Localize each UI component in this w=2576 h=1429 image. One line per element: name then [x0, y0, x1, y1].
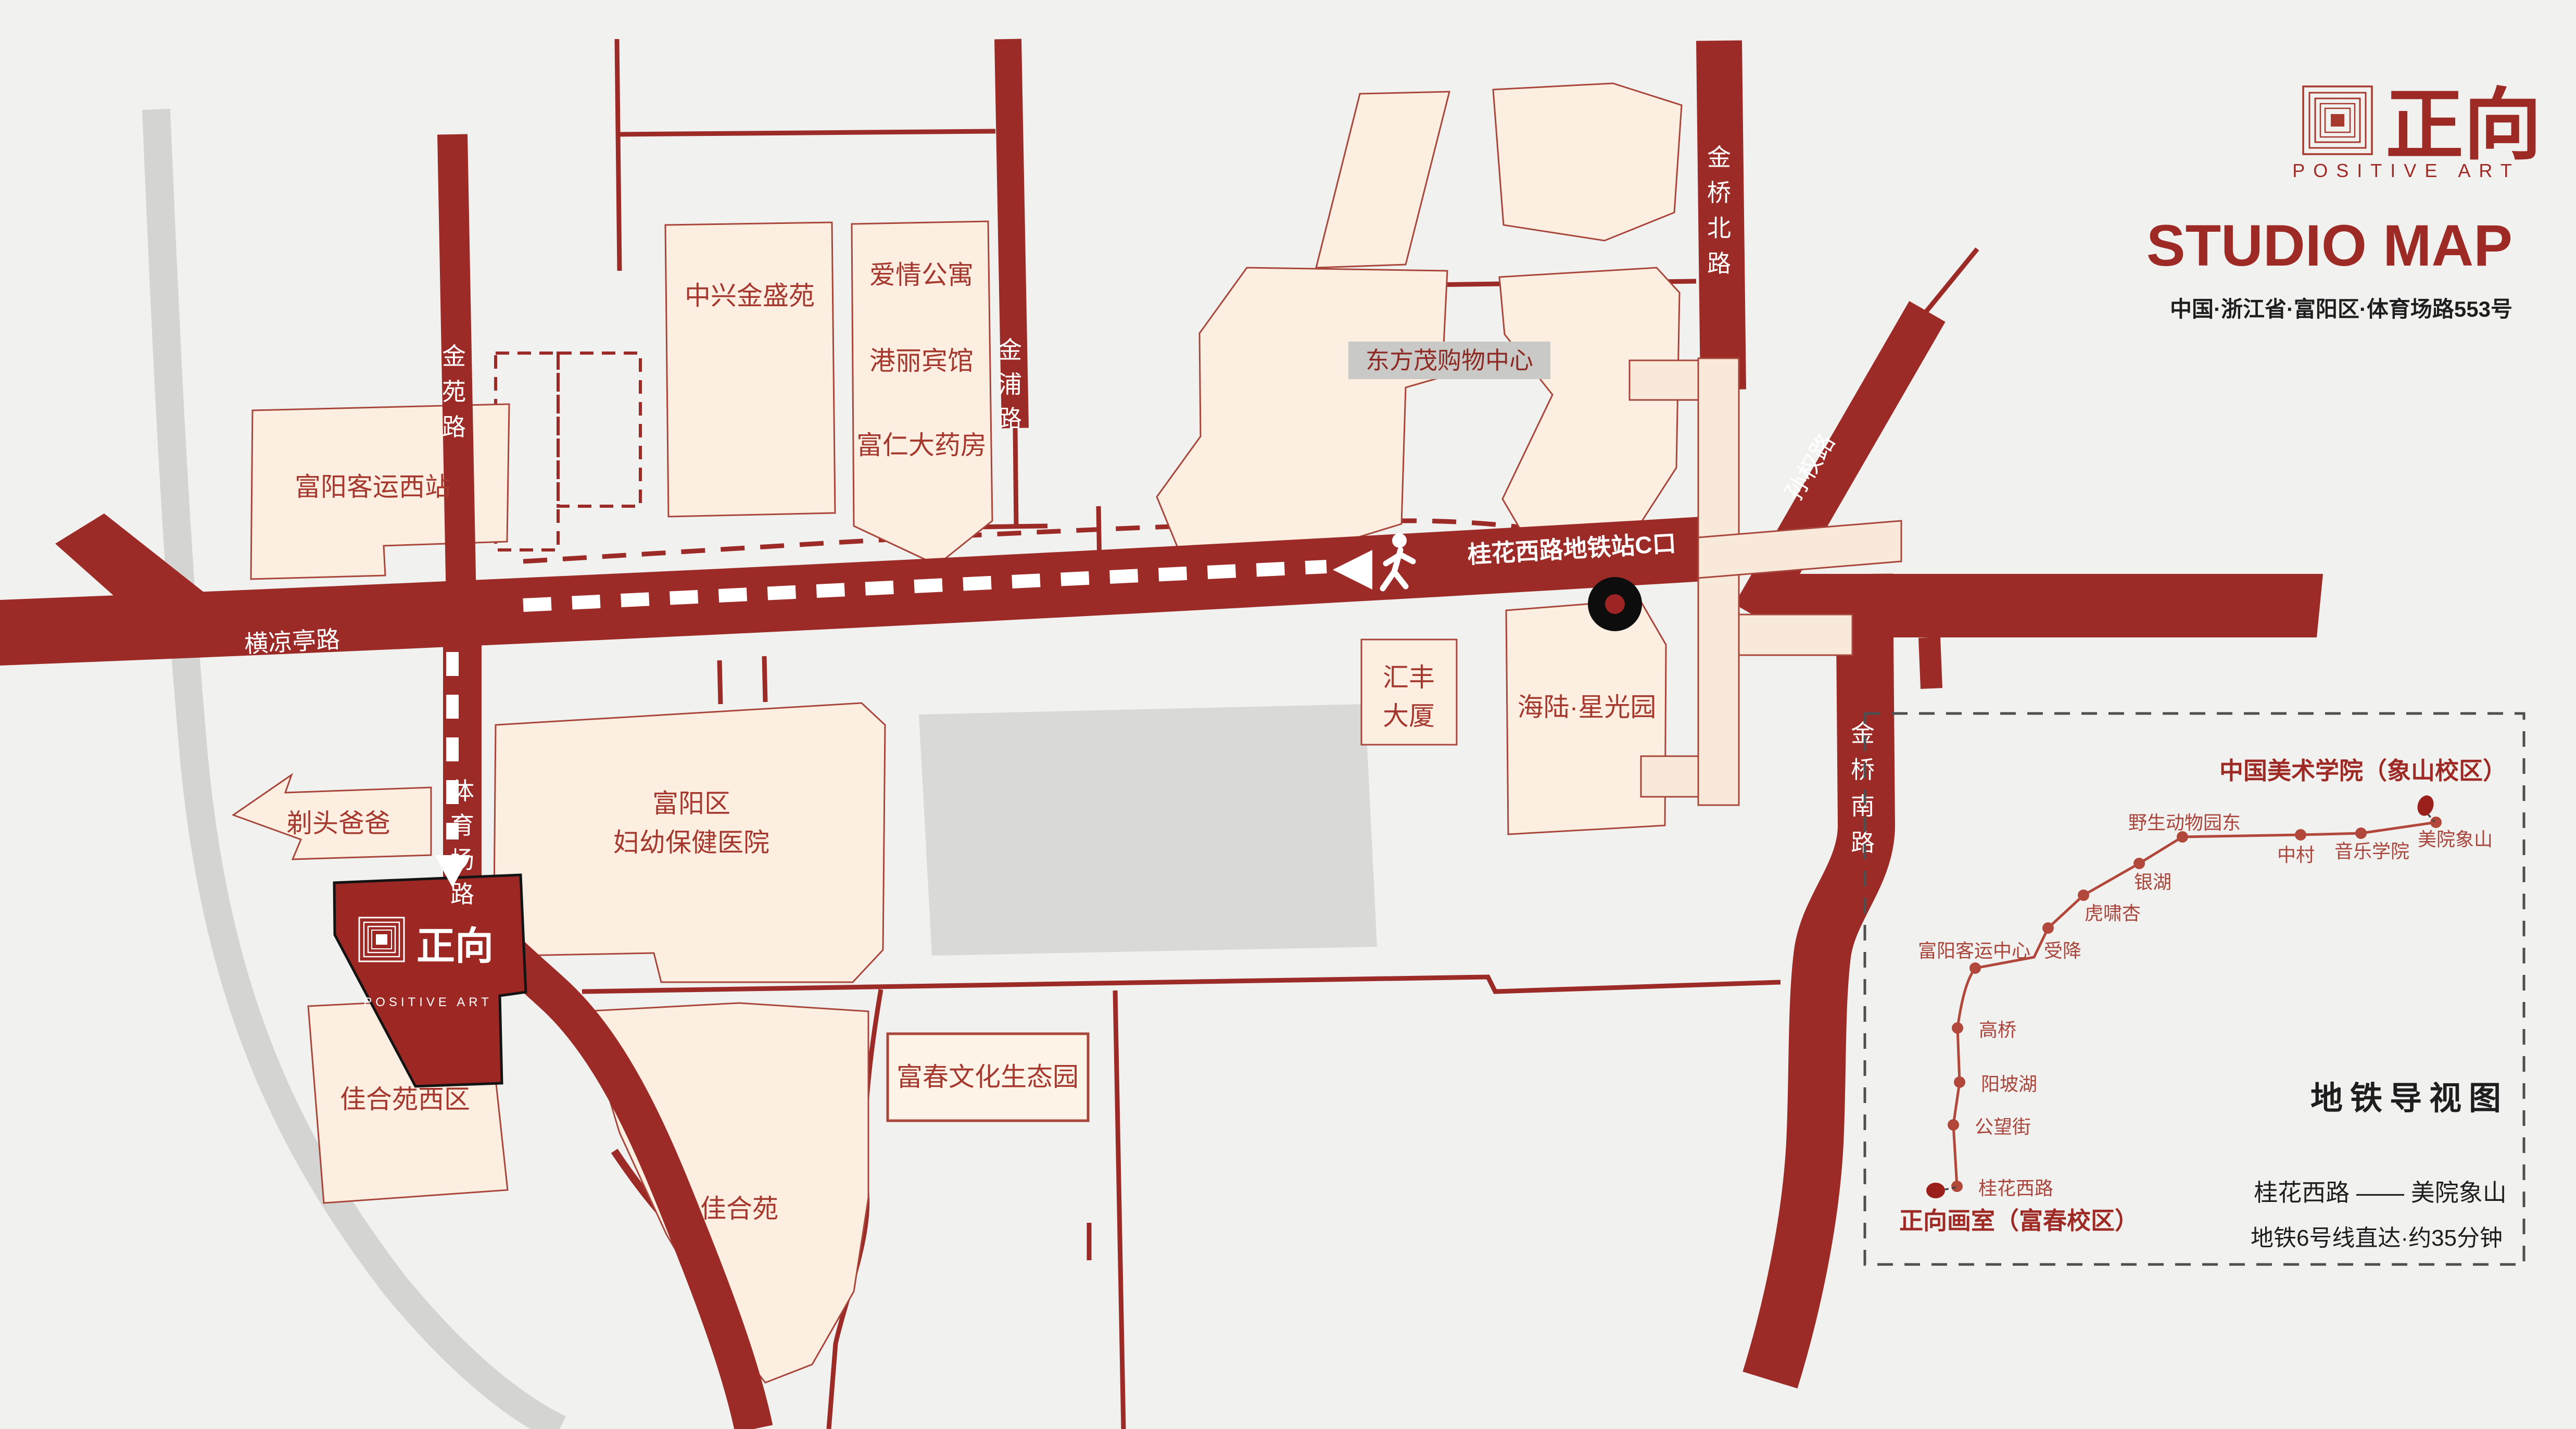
metro-station-dot — [2355, 828, 2367, 839]
metro-station-label: 桂花西路 — [1978, 1177, 2053, 1199]
hospital-stub-2 — [764, 656, 765, 702]
gray-block — [919, 704, 1377, 956]
label-dongfangmao-group: 东方茂购物中心 — [1348, 342, 1550, 379]
panel-dest-title: 中国美术学院（象山校区） — [2219, 757, 2507, 784]
metro-station-dot — [1951, 1181, 1963, 1192]
hospital-stub-1 — [719, 660, 721, 704]
studio-logo-en: POSITIVE ART — [363, 995, 493, 1009]
brand-name-cn: 正向 — [2385, 81, 2542, 169]
panel-origin-title: 正向画室（富春校区） — [1899, 1207, 2139, 1234]
label-hailu: 海陆·星光园 — [1518, 693, 1657, 722]
building-mall-b — [1493, 83, 1682, 241]
metro-station-dot — [1952, 1022, 1963, 1034]
metro-station-label: 野生动物园东 — [2128, 812, 2241, 833]
metro-station-dot — [2078, 889, 2089, 901]
metro-station-dot — [2295, 829, 2306, 841]
label-jiaheyuan-west: 佳合苑西区 — [340, 1085, 470, 1114]
label-hotel: 港丽宾馆 — [869, 346, 974, 375]
metro-station-dot — [2430, 817, 2442, 828]
label-fuchun-park: 富春文化生态园 — [896, 1062, 1079, 1092]
metro-station-label: 受降 — [2044, 940, 2081, 961]
metro-station-label: 音乐学院 — [2334, 841, 2409, 862]
page-address: 中国·浙江省·富阳区·体育场路553号 — [2170, 297, 2512, 321]
label-pharmacy: 富仁大药房 — [856, 431, 987, 460]
pale-stub-topleft — [1630, 360, 1698, 400]
metro-station-label: 虎啸杏 — [2085, 902, 2141, 924]
metro-terminal-origin — [1926, 1183, 1945, 1198]
road-label-jinyuan: 金苑路 — [442, 343, 466, 441]
metro-station-dot — [1969, 962, 1981, 974]
label-hospital-1: 富阳区 — [652, 789, 730, 818]
jinpu-road-lower — [1015, 428, 1016, 529]
panel-title: 地铁导视图 — [2310, 1081, 2508, 1117]
metro-station-dot — [1954, 1076, 1965, 1088]
metro-station-label: 高桥 — [1979, 1019, 2016, 1041]
metro-station-dot — [1948, 1119, 1959, 1131]
label-fuyang-west-bus: 富阳客运西站 — [295, 472, 451, 502]
label-dongfangmao: 东方茂购物中心 — [1366, 347, 1533, 374]
brand-name-en: POSITIVE ART — [2292, 160, 2520, 181]
studio-logo-cn: 正向 — [416, 924, 494, 968]
pale-road-vertical — [1698, 358, 1739, 805]
metro-station-label: 富阳客运中心 — [1918, 940, 2030, 961]
metro-station-dot — [2042, 922, 2054, 934]
road-stub-east — [1929, 637, 1931, 688]
label-apartment: 爱情公寓 — [869, 260, 974, 290]
pale-stub-bottomleft — [1641, 756, 1698, 797]
metro-exit-marker-inner — [1605, 594, 1625, 614]
road-label-jinpu: 金浦路 — [998, 336, 1022, 432]
metro-station-label: 阳坡湖 — [1981, 1073, 2037, 1095]
page-title: STUDIO MAP — [2146, 213, 2512, 278]
label-zhongxing: 中兴金盛苑 — [685, 281, 815, 310]
thin-road-north-2 — [617, 131, 995, 134]
building-zhongxing — [665, 222, 835, 517]
metro-station-label: 公望街 — [1975, 1116, 2031, 1137]
label-huifeng-2: 大厦 — [1383, 701, 1435, 731]
thin-road-north-1 — [617, 39, 620, 271]
metro-station-label: 中村 — [2277, 844, 2315, 866]
label-jiaheyuan: 佳合苑 — [700, 1194, 778, 1223]
studio-map-canvas: 正向 POSITIVE ART 横凉亭路 桂花西路地铁站C口 金苑路 体育场路 … — [0, 0, 2576, 1429]
label-barber: 剃头爸爸 — [286, 809, 390, 838]
label-hospital-2: 妇幼保健医院 — [613, 828, 769, 857]
panel-note: 地铁6号线直达·约35分钟 — [2251, 1225, 2503, 1251]
road-jinpu — [1008, 39, 1015, 428]
metro-station-label: 银湖 — [2134, 871, 2171, 893]
road-label-hengliangting: 横凉亭路 — [244, 625, 340, 658]
pale-stub-right — [1739, 615, 1852, 655]
metro-station-dot — [2133, 858, 2145, 869]
panel-route: 桂花西路 —— 美院象山 — [2254, 1179, 2507, 1206]
label-huifeng-1: 汇丰 — [1383, 663, 1435, 692]
metro-station-label: 美院象山 — [2418, 829, 2493, 850]
